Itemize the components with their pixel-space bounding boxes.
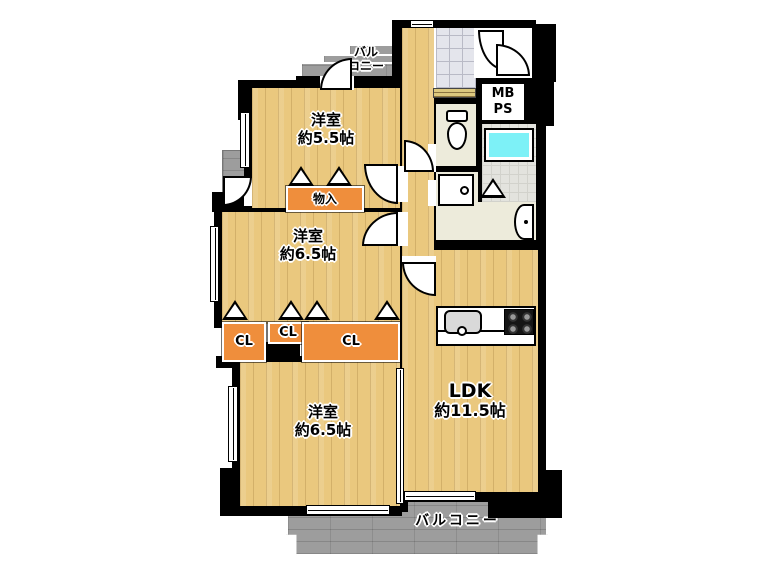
- toilet-icon: [446, 110, 468, 122]
- bedroom-middle-label: 洋室 約6.5帖: [222, 228, 394, 263]
- window: [240, 112, 250, 168]
- window: [306, 505, 390, 515]
- entrance-step: [433, 88, 476, 98]
- window: [228, 386, 238, 462]
- storage-box: 物入: [286, 186, 364, 212]
- bathtub-icon: [484, 128, 534, 162]
- entrance-floor: [436, 28, 476, 88]
- ldk-label-line1: LDK: [449, 380, 492, 402]
- window: [210, 226, 219, 302]
- washbasin-faucet-icon: [524, 220, 528, 224]
- ldk-label-line2: 約11.5帖: [434, 401, 505, 420]
- bedroom-middle-label-line1: 洋室: [293, 227, 323, 245]
- folding-door-icon: [326, 166, 352, 186]
- bedroom-bottom-label-line2: 約6.5帖: [295, 421, 352, 439]
- meter-box-label: MB PS: [492, 86, 515, 119]
- ldk-label: LDK 約11.5帖: [402, 380, 538, 421]
- balcony-top-label-line1: バル: [354, 45, 378, 59]
- storage-label: 物入: [313, 192, 337, 206]
- window: [404, 491, 476, 501]
- closet-left-label: CL: [235, 334, 253, 349]
- folding-door-icon: [278, 300, 304, 320]
- meter-box-label-line1: MB: [492, 86, 515, 101]
- closet-right: CL: [302, 322, 400, 362]
- folding-door-icon: [374, 300, 400, 320]
- wall: [532, 24, 556, 82]
- bedroom-top-label: 洋室 約5.5帖: [256, 112, 396, 147]
- bedroom-top-label-line1: 洋室: [311, 111, 341, 129]
- closet-middle-label: CL: [279, 325, 297, 340]
- meter-box-label-line2: PS: [494, 102, 513, 117]
- meter-box: MB PS: [480, 82, 526, 122]
- gas-stove-icon: [504, 309, 534, 335]
- closet-right-label: CL: [342, 334, 360, 349]
- folding-door-icon: [480, 178, 506, 198]
- window: [410, 20, 434, 28]
- floor-plan: バル コニー バルコニー: [0, 0, 780, 585]
- bedroom-middle-label-line2: 約6.5帖: [280, 245, 337, 263]
- folding-door-icon: [288, 166, 314, 186]
- door-opening: [398, 212, 408, 246]
- folding-door-icon: [304, 300, 330, 320]
- door-opening: [428, 180, 436, 206]
- closet-left: CL: [222, 322, 266, 362]
- bedroom-bottom-label: 洋室 約6.5帖: [248, 404, 398, 439]
- bedroom-bottom-label-line1: 洋室: [308, 403, 338, 421]
- folding-door-icon: [222, 300, 248, 320]
- kitchen-faucet-icon: [457, 326, 467, 336]
- bedroom-top-label-line2: 約5.5帖: [298, 129, 355, 147]
- balcony-top-label-line2: コニー: [348, 59, 384, 73]
- washing-machine-drain-icon: [460, 186, 469, 195]
